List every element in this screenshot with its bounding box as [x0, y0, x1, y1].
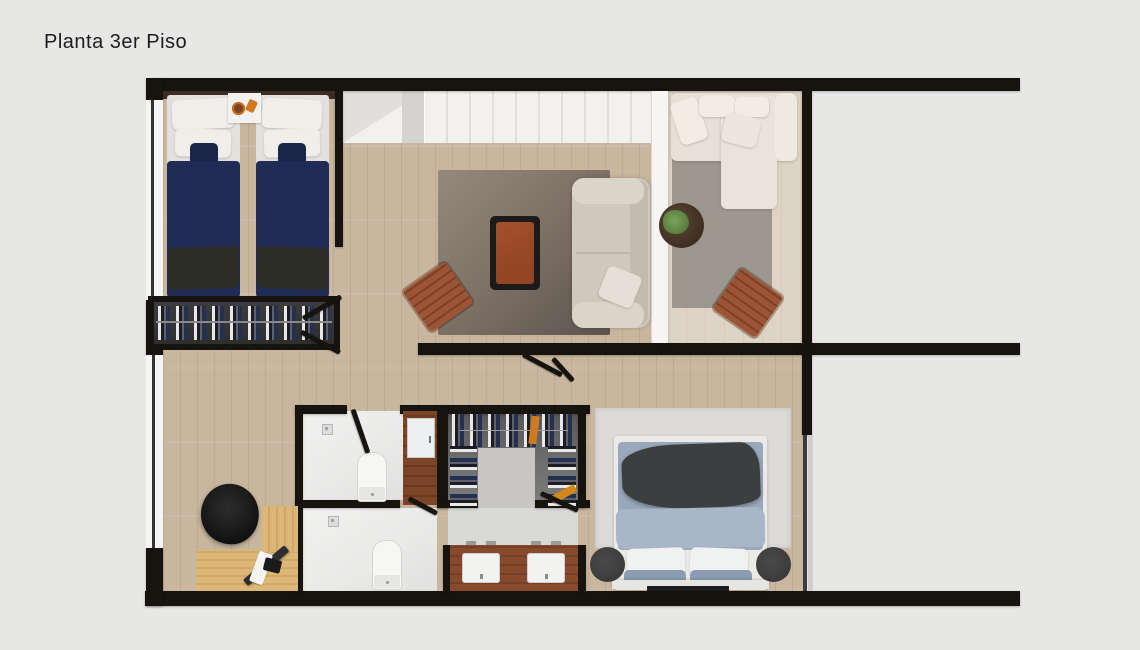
window-left-top: [151, 100, 154, 300]
nightstand: [228, 93, 261, 123]
pouf: [756, 547, 791, 582]
plan-title: Planta 3er Piso: [44, 31, 187, 54]
pouf: [590, 547, 625, 582]
sink-drain: [545, 574, 548, 579]
shower-drain: [328, 516, 339, 527]
walkin-rail: [460, 430, 568, 431]
faucet: [466, 541, 476, 545]
faucet: [486, 541, 496, 545]
sink: [527, 553, 565, 583]
sectional-sofa: [671, 93, 797, 209]
walkin-closet-center-floor: [478, 448, 535, 508]
shower-drain: [322, 424, 333, 435]
bed-pillow: [261, 97, 322, 130]
plant: [663, 210, 689, 234]
bed-duvet-fold: [616, 507, 766, 550]
window-right-sill: [808, 435, 813, 591]
wardrobe-closet: [148, 296, 340, 350]
bathroom-2-floor: [303, 508, 437, 592]
walkin-clothes-left: [450, 446, 477, 506]
door-handle: [429, 436, 431, 443]
toilet: [357, 452, 387, 502]
decor-item: [245, 99, 258, 114]
wall-left-bottom: [146, 548, 163, 606]
sink-drain: [480, 574, 483, 579]
stairs-area: [343, 91, 651, 143]
wall-bath-vertical: [437, 405, 448, 508]
bed-throw: [256, 246, 328, 290]
wall-vanity-left: [443, 545, 450, 592]
twin-bed-1: [167, 95, 240, 301]
vanity-zone-floor: [448, 508, 578, 545]
faucet: [551, 541, 561, 545]
main-bed: [614, 436, 767, 590]
toilet-flush: [371, 493, 374, 496]
fruit-plate: [232, 102, 245, 115]
sofa-armrest: [572, 302, 644, 328]
sink: [462, 553, 500, 583]
stair-treads: [425, 91, 651, 143]
coffee-table-leather-top: [496, 222, 534, 284]
stairs-rail: [402, 91, 426, 143]
wall-bedroom-left-a: [578, 405, 586, 508]
wall-middle: [418, 343, 1020, 355]
desk-return: [262, 506, 298, 552]
wall-twin-bedroom-right: [335, 91, 343, 247]
living-sofa: [572, 178, 650, 328]
wall-lounge-right: [802, 91, 812, 343]
wall-top: [153, 78, 1020, 91]
headboard-bench: [647, 586, 729, 591]
twin-bed-2: [256, 95, 329, 301]
sectional-armrest: [775, 93, 797, 161]
toilet: [372, 540, 402, 590]
wall-bedroom-left-b: [578, 545, 586, 592]
window-left-bottom: [152, 355, 155, 548]
coffee-table: [490, 216, 540, 290]
window-left-top-sill: [146, 100, 163, 300]
storage-door-leaf: [407, 418, 435, 458]
wall-bottom: [145, 591, 1020, 606]
bathroom-1-floor: [303, 411, 403, 500]
toilet-flush: [386, 581, 389, 584]
bed-throw-dark: [621, 442, 761, 511]
bed-pillow: [171, 97, 234, 130]
sofa-armrest: [572, 178, 644, 204]
bed-throw: [167, 246, 239, 290]
window-right: [803, 435, 807, 591]
wardrobe-rail: [156, 321, 332, 323]
floor-plan-canvas: Planta 3er Piso: [0, 0, 1140, 650]
sofa-cushion-line: [576, 252, 634, 254]
wall-left-top: [146, 78, 163, 100]
wall-bedroom-right: [802, 343, 812, 435]
faucet: [531, 541, 541, 545]
